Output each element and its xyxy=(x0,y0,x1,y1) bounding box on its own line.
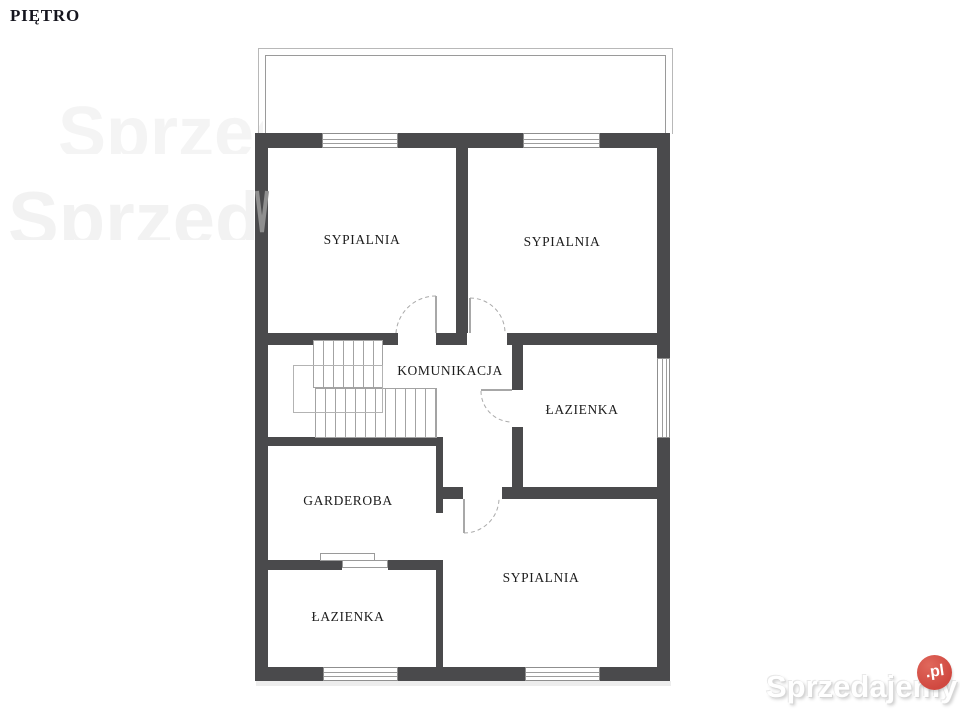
doors-layer xyxy=(0,0,960,720)
room-label-wardrobe: GARDEROBA xyxy=(303,493,392,509)
room-label-bedroom-top-right: SYPIALNIA xyxy=(524,234,601,250)
wall-watermark-mark xyxy=(257,191,267,232)
site-watermark-tld: .pl xyxy=(924,662,945,682)
floor-plan-page: Sprzedajemy Sprzedajemy PIĘTRO xyxy=(0,0,960,720)
room-label-bedroom-top-left: SYPIALNIA xyxy=(324,232,401,248)
room-label-hallway: KOMUNIKACJA xyxy=(397,363,503,379)
door-swing-arc xyxy=(396,296,436,333)
door-swing-arc xyxy=(464,499,499,533)
door-swing-arc xyxy=(470,298,505,333)
room-label-bathroom-middle: ŁAZIENKA xyxy=(545,402,618,418)
door-swing-arc xyxy=(481,391,512,422)
site-watermark-badge: .pl xyxy=(917,655,952,690)
room-label-bedroom-bottom: SYPIALNIA xyxy=(503,570,580,586)
room-label-bathroom-bottom: ŁAZIENKA xyxy=(311,609,384,625)
